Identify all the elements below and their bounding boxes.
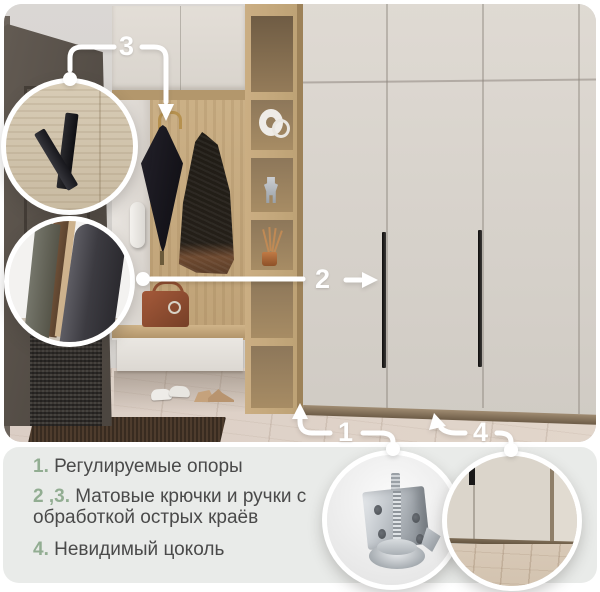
panel-edges-closeup-circle (4, 216, 135, 347)
legend-item-4: 4. Невидимый цоколь (33, 539, 224, 560)
legend-text: Матовые крючки и ручки с обработкой остр… (33, 486, 306, 528)
wardrobe-door-seam (386, 4, 388, 410)
wood-floor-detail (447, 544, 582, 591)
hook-closeup-circle (1, 78, 138, 215)
bracket-hole (374, 505, 382, 515)
wardrobe-door-handle (382, 232, 386, 368)
shelf-compartment (251, 278, 293, 338)
foot-base-top (377, 539, 417, 555)
legend-number: 2 ,3. (33, 486, 70, 507)
wardrobe-door-handle (478, 230, 482, 367)
legend-text: Регулируемые опоры (54, 456, 243, 477)
plinth-closeup-circle (442, 451, 582, 591)
legend-number: 1. (33, 456, 49, 477)
callout-number-2: 2 (315, 264, 330, 295)
upper-cabinet-seam (180, 6, 181, 90)
bracket-hole (378, 529, 386, 539)
wardrobe (303, 4, 596, 424)
leather-bag (142, 291, 189, 327)
wardrobe-door-seam (482, 4, 484, 408)
callout-number-1: 1 (338, 417, 353, 448)
legend-item-1: 1. Регулируемые опоры (33, 456, 243, 477)
threaded-rod (393, 491, 401, 543)
small-door-handle (469, 464, 475, 485)
legend-number: 4. (33, 539, 49, 560)
donut-vase-ring (272, 119, 290, 138)
legend-item-2-3: 2 ,3. Матовые крючки и ручки с обработко… (33, 486, 325, 528)
callout-number-3: 3 (119, 31, 134, 62)
legend-text: Невидимый цоколь (54, 539, 224, 560)
reed-diffuser-jar (262, 252, 277, 266)
callout-number-4: 4 (473, 417, 488, 448)
bench-drawer (117, 338, 243, 371)
product-infographic: { "annotations": { "n1": {"label": "1"},… (0, 0, 600, 592)
shelf-column-edge (297, 4, 303, 414)
umbrella-tip (160, 251, 164, 265)
white-sneaker (169, 385, 191, 397)
shelf-compartment (251, 346, 293, 408)
adjustable-foot-closeup-circle (322, 450, 462, 590)
shelf-compartment (251, 16, 293, 92)
bracket-hole (412, 513, 420, 523)
bag-ring-detail (168, 301, 181, 314)
wardrobe-door-seam (578, 4, 580, 414)
